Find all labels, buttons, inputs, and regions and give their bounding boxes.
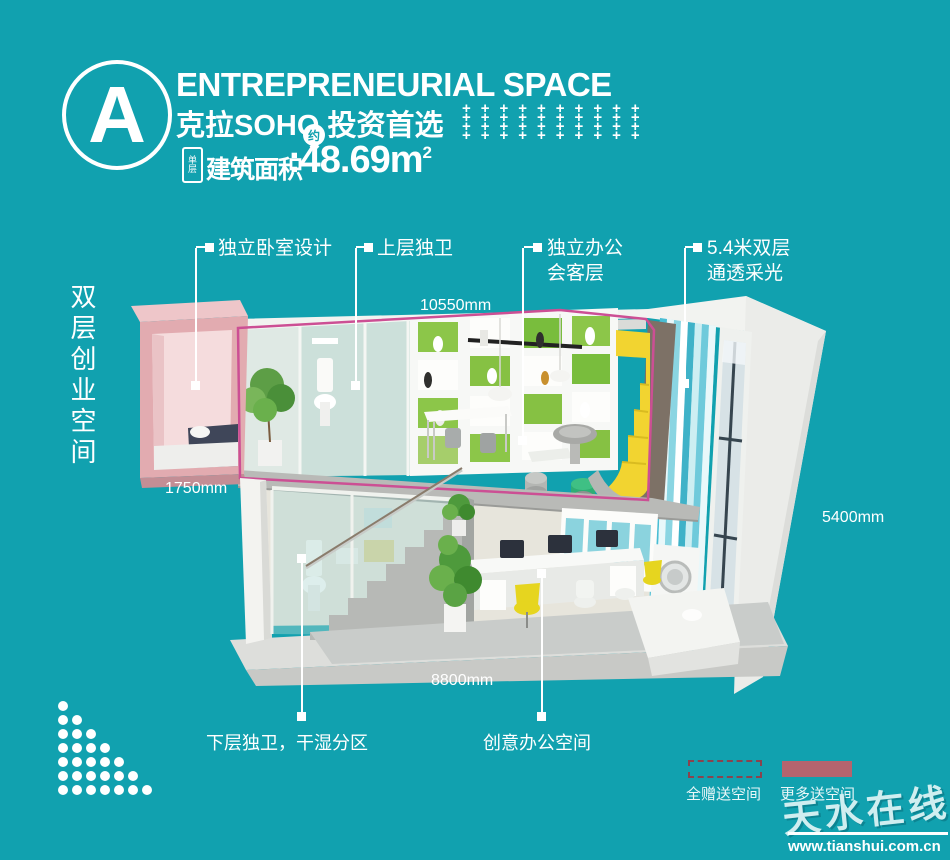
callout-bedroom: 独立卧室设计 [218, 236, 332, 261]
area-tag-icon: 单层 [182, 147, 203, 183]
legend-gift-all-swatch [688, 760, 762, 778]
callout-daylight-line-h [685, 246, 694, 248]
legend-gift-more-swatch [782, 761, 852, 777]
area-superscript: 2 [423, 143, 431, 162]
area-colon: : [288, 139, 300, 181]
poster: A ENTREPRENEURIAL SPACE 克拉SOHO 投资首选 ++++… [0, 0, 950, 860]
callout-upper-bath: 上层独卫 [377, 236, 453, 261]
dim-top: 10550mm [420, 297, 491, 315]
callout-daylight-line1: 5.4米双层 [707, 236, 790, 261]
callout-bedroom-line-v [195, 248, 197, 383]
callout-office-anchor [518, 436, 527, 445]
callout-bedroom-bullet [205, 243, 214, 252]
callout-lower-bath: 下层独卫，干湿分区 [206, 729, 368, 755]
unit-badge: A [62, 60, 172, 170]
legend-gift-all-label: 全赠送空间 [686, 783, 761, 804]
callout-office-line-v [522, 248, 524, 438]
callout-daylight-line-v [684, 248, 686, 381]
shelf-wall [410, 308, 618, 476]
callout-creative: 创意办公空间 [483, 729, 591, 755]
dim-bottom: 8800mm [431, 672, 493, 690]
callout-office-line1: 独立办公 [547, 236, 623, 261]
watermark-url: www.tianshui.com.cn [788, 838, 941, 855]
callout-office-bullet [533, 243, 542, 252]
callout-office-line-h [524, 246, 534, 248]
callout-upper-bath-line-v [355, 248, 357, 383]
callout-lower-bath-line-v [301, 562, 303, 714]
callout-office: 独立办公 会客层 [547, 236, 623, 286]
plus-pattern: ++++++++++++++++++++++++++++++++++++++++ [462, 104, 650, 140]
pink-bedroom [131, 300, 248, 488]
callout-creative-bullet [537, 712, 546, 721]
callout-upper-bath-line-h [356, 246, 365, 248]
callout-daylight-line2: 通透采光 [707, 261, 790, 286]
callout-upper-bath-bullet [364, 243, 373, 252]
side-label: 双层创业空间 [64, 283, 101, 469]
title-en: ENTREPRENEURIAL SPACE [176, 66, 612, 104]
callout-bedroom-anchor [191, 381, 200, 390]
callout-upper-bath-anchor [351, 381, 360, 390]
dim-bedroom: 1750mm [165, 480, 227, 498]
area-tag-label: 单层 [188, 156, 197, 174]
callout-lower-bath-bullet [297, 712, 306, 721]
watermark-rule [788, 832, 948, 835]
callout-office-line2: 会客层 [547, 261, 623, 286]
dot-triangle [58, 698, 156, 796]
callout-daylight-anchor [680, 379, 689, 388]
callout-daylight-bullet [693, 243, 702, 252]
callout-creative-line-v [541, 577, 543, 714]
callout-bedroom-line-h [196, 246, 206, 248]
callout-daylight: 5.4米双层 通透采光 [707, 236, 790, 286]
dim-right: 5400mm [822, 509, 884, 527]
unit-badge-letter: A [88, 75, 146, 155]
